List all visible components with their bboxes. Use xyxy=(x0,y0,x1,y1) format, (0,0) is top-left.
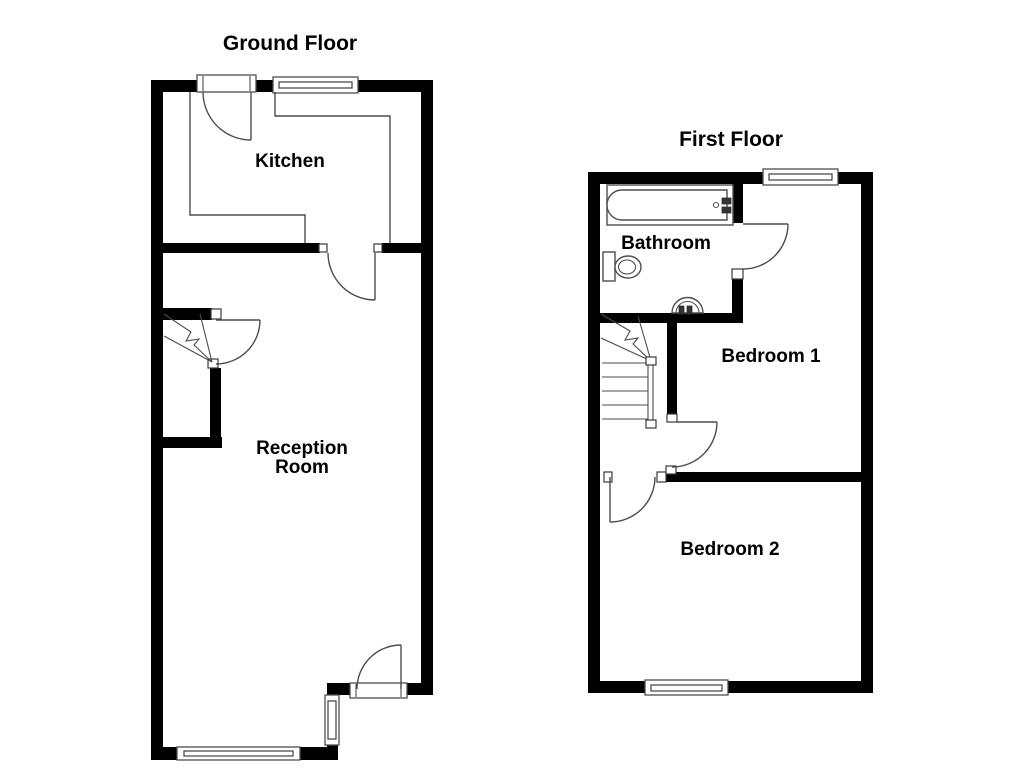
bedroom1-label: Bedroom 1 xyxy=(721,346,821,367)
wall-segment xyxy=(588,172,600,693)
window-pane xyxy=(279,82,352,88)
toilet xyxy=(603,252,641,281)
wall-segment xyxy=(421,80,433,695)
wall-segment xyxy=(163,243,320,253)
bathroom-door xyxy=(732,224,788,279)
door-swing-arc xyxy=(672,422,717,467)
door-jamb xyxy=(667,414,677,422)
stair-newel xyxy=(646,420,656,428)
rear-side-window xyxy=(325,695,339,745)
kitchen-reception-door xyxy=(319,244,382,300)
ground-floor-plan: Ground Floor xyxy=(151,32,433,760)
floorplan-canvas: Ground Floor xyxy=(0,0,1024,768)
reception-room-label-line2: Room xyxy=(275,457,329,478)
entrance-door xyxy=(197,75,256,140)
window-pane xyxy=(328,701,336,739)
stair-newel xyxy=(646,357,656,365)
kitchen-window xyxy=(273,77,358,93)
bathroom-label: Bathroom xyxy=(621,233,711,254)
stair-winder-line xyxy=(200,314,212,362)
bedroom1-door xyxy=(666,414,717,474)
wall-segment xyxy=(404,683,433,695)
wall-segment xyxy=(588,313,743,323)
stairs-door xyxy=(208,309,260,368)
front-reception-window xyxy=(177,747,300,760)
ground-floor-title: Ground Floor xyxy=(223,32,357,55)
door-swing-arc xyxy=(216,320,260,364)
window-pane xyxy=(184,751,293,756)
door-swing-arc xyxy=(328,253,375,300)
basin xyxy=(672,298,703,315)
wall-segment xyxy=(588,681,873,693)
door-swing-arc xyxy=(203,92,251,140)
wall-segment xyxy=(151,80,163,759)
bathtub-tap xyxy=(722,198,731,204)
door-frame xyxy=(350,683,407,698)
door-jamb xyxy=(604,472,612,482)
bedroom2-door xyxy=(604,472,666,522)
door-swing-arc xyxy=(743,224,788,269)
door-swing-arc xyxy=(610,477,655,522)
door-jamb xyxy=(374,244,382,252)
rear-door xyxy=(350,645,407,698)
staircase-ground xyxy=(164,314,212,362)
bedroom2-window xyxy=(645,680,728,695)
bedroom2-label: Bedroom 2 xyxy=(680,539,779,560)
wall-segment xyxy=(861,172,873,693)
door-jamb xyxy=(657,472,666,482)
window-pane xyxy=(769,174,832,180)
wall-segment xyxy=(667,323,677,414)
basin-tap xyxy=(687,306,692,314)
toilet-cistern xyxy=(603,252,615,281)
bathtub-inner xyxy=(607,190,727,220)
bathtub-tap xyxy=(722,207,731,213)
door-jamb xyxy=(319,244,327,252)
wall-segment xyxy=(210,368,221,437)
basin-tap xyxy=(679,306,684,314)
door-jamb xyxy=(211,309,221,319)
first-floor-title: First Floor xyxy=(679,128,783,151)
window-pane xyxy=(651,685,722,691)
reception-room-label-line1: Reception xyxy=(256,438,348,459)
wall-segment xyxy=(666,472,873,482)
kitchen-label: Kitchen xyxy=(255,151,325,172)
wall-segment xyxy=(732,279,743,313)
stair-winder-line xyxy=(601,338,651,361)
floorplan-page: Ground Floor xyxy=(0,0,1024,768)
staircase-first xyxy=(601,314,656,428)
door-jamb xyxy=(732,269,743,279)
stair-direction-zigzag xyxy=(164,314,212,362)
bedroom1-window xyxy=(763,169,838,185)
wall-segment xyxy=(161,437,222,448)
first-floor-plan: First Floor xyxy=(588,128,873,695)
door-frame xyxy=(197,75,256,92)
wall-segment xyxy=(382,243,421,253)
bathtub xyxy=(607,185,733,225)
stair-winder-line xyxy=(164,336,212,362)
